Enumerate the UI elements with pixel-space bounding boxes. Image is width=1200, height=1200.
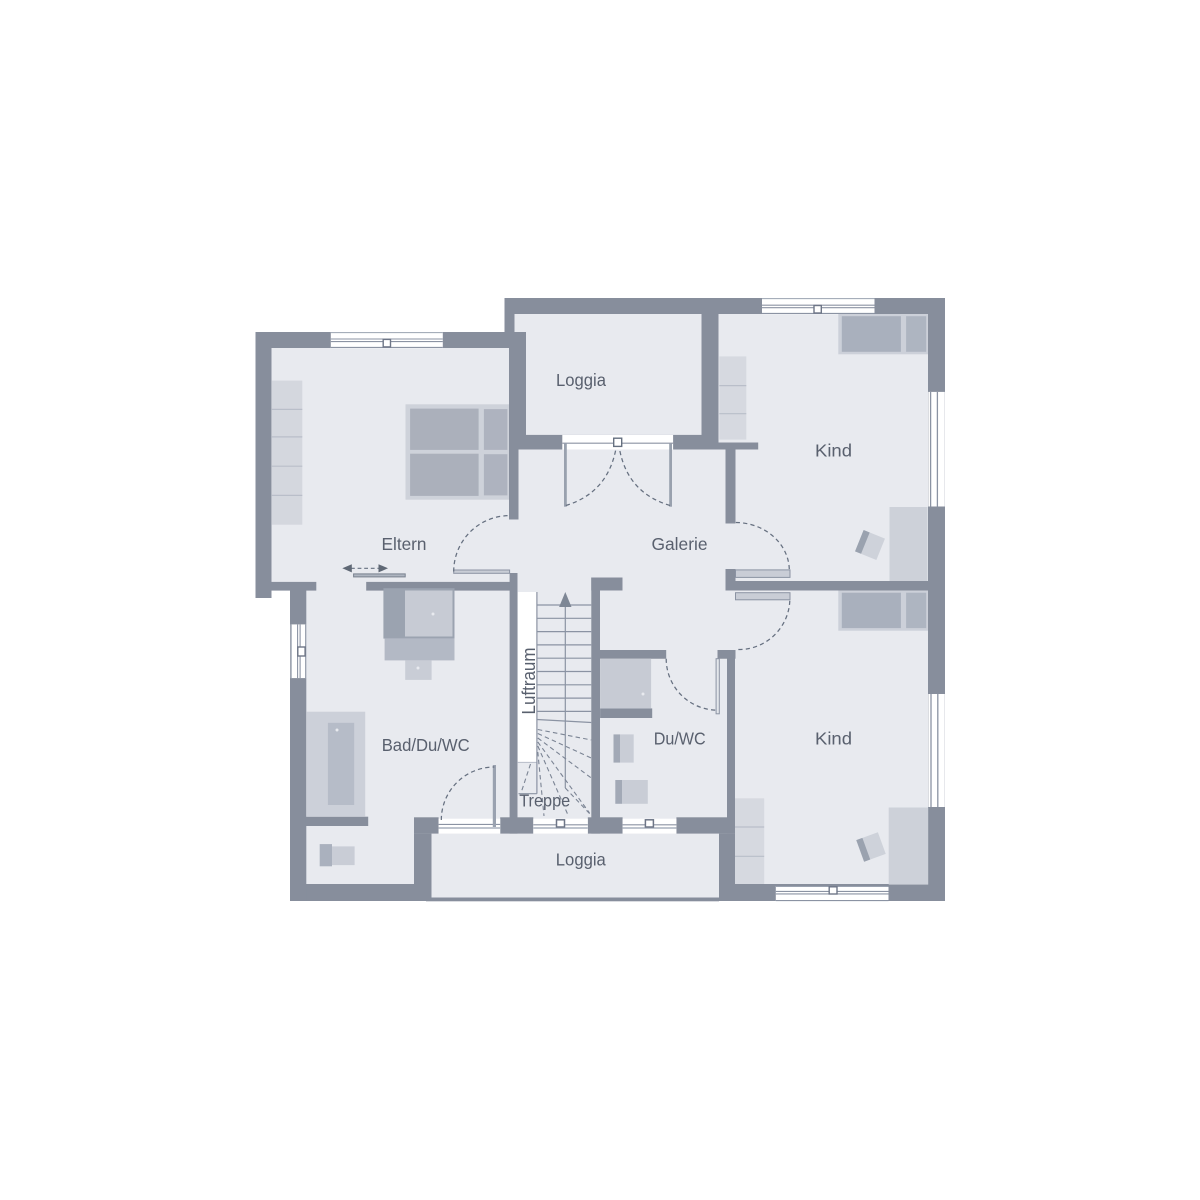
- svg-text:Galerie: Galerie: [652, 534, 708, 554]
- svg-text:Kind: Kind: [815, 729, 852, 749]
- svg-text:Kind: Kind: [815, 441, 852, 461]
- svg-text:Loggia: Loggia: [556, 370, 606, 390]
- svg-text:Treppe: Treppe: [519, 791, 570, 811]
- svg-text:Du/WC: Du/WC: [654, 729, 706, 749]
- svg-text:Eltern: Eltern: [382, 534, 427, 554]
- svg-text:Loggia: Loggia: [556, 850, 606, 870]
- svg-text:Bad/Du/WC: Bad/Du/WC: [382, 735, 470, 755]
- svg-text:Luftraum: Luftraum: [519, 648, 539, 715]
